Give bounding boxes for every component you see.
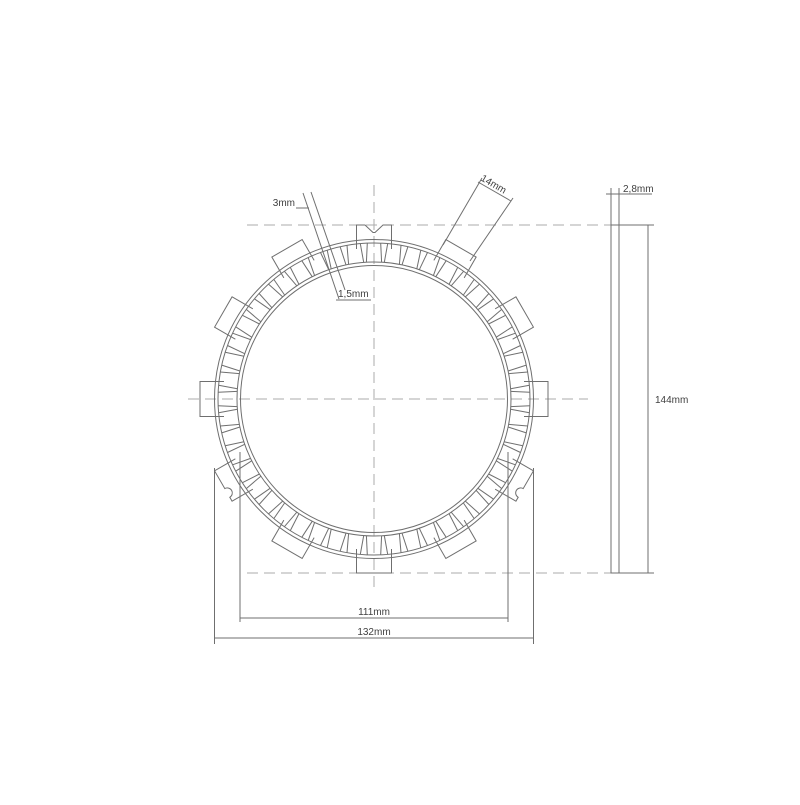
pad-groove-line xyxy=(508,365,526,371)
pad-groove-line xyxy=(347,245,349,264)
pad-groove-line xyxy=(402,247,408,265)
pad-groove-line xyxy=(290,267,299,284)
pad-groove-line xyxy=(511,391,530,392)
pad-groove-line xyxy=(366,536,367,555)
pad-groove-line xyxy=(228,346,245,354)
pad-groove-line xyxy=(487,476,502,488)
pad-groove-line xyxy=(366,243,367,262)
pad-groove-line xyxy=(254,488,270,499)
pad-groove-line xyxy=(381,243,382,262)
dimension-lines xyxy=(215,178,655,644)
pad-groove-line xyxy=(503,346,520,354)
pad-groove-line xyxy=(511,385,530,388)
pad-groove-line xyxy=(419,528,427,545)
side-view xyxy=(611,225,619,573)
pad-groove-line xyxy=(290,514,299,531)
pad-groove-line xyxy=(417,529,421,548)
pad-groove-line xyxy=(254,299,270,310)
pad-groove-line xyxy=(487,309,502,321)
thickness-label: 2,8mm xyxy=(623,184,654,195)
pad-groove-line xyxy=(504,442,523,446)
slot-inner-width-label: 1,5mm xyxy=(338,289,369,300)
pad-groove-line xyxy=(508,427,526,433)
pad-groove-line xyxy=(509,424,528,426)
pad-groove-line xyxy=(219,385,238,388)
pad-groove-line xyxy=(327,529,331,548)
pad-groove-line xyxy=(399,534,401,553)
dimension-labels: 3mm 14mm 1,5mm 2,8mm 144mm 111mm 132mm xyxy=(273,173,689,638)
pad-groove-line xyxy=(225,352,244,356)
pad-groove-line xyxy=(274,279,285,295)
dimension-line xyxy=(443,178,482,245)
pad-groove-line xyxy=(274,503,285,519)
pad-groove-line xyxy=(478,299,494,310)
pad-groove-line xyxy=(511,409,530,412)
pad-groove-line xyxy=(269,501,283,514)
pad-groove-line xyxy=(463,503,474,519)
pad-groove-line xyxy=(284,271,296,286)
pad-groove-line xyxy=(489,474,506,483)
pad-groove-line xyxy=(419,253,427,270)
slot-outer-width-label: 3mm xyxy=(273,198,295,209)
pad-groove-line xyxy=(451,512,463,527)
pad-groove-line xyxy=(511,406,530,407)
pad-groove-line xyxy=(449,267,458,284)
pad-groove-line xyxy=(220,372,239,374)
pad-groove-line xyxy=(340,533,346,551)
pad-groove-line xyxy=(242,474,259,483)
pad-groove-line xyxy=(347,534,349,553)
pad-groove-line xyxy=(478,488,494,499)
pad-groove-line xyxy=(381,536,382,555)
pad-groove-line xyxy=(465,501,479,514)
pad-groove-line xyxy=(246,476,260,488)
outer-diameter-label: 132mm xyxy=(357,627,390,638)
pad-groove-line xyxy=(218,391,237,392)
pad-groove-line xyxy=(220,424,239,426)
pad-groove-line xyxy=(451,271,463,286)
pad-groove-line xyxy=(503,444,520,452)
pad-groove-line xyxy=(284,512,296,527)
pad-groove-line xyxy=(476,490,489,504)
pad-groove-line xyxy=(465,284,479,297)
pad-groove-line xyxy=(504,352,523,356)
pad-groove-line xyxy=(222,365,240,371)
pad-groove-line xyxy=(402,533,408,551)
pad-groove-line xyxy=(269,284,283,297)
pad-groove-line xyxy=(384,536,387,555)
clutch-friction-plate-drawing: 3mm 14mm 1,5mm 2,8mm 144mm 111mm 132mm xyxy=(0,0,800,800)
pad-groove-line xyxy=(463,279,474,295)
pad-groove-line xyxy=(242,315,259,324)
pad-groove-line xyxy=(476,294,489,308)
pad-groove-line xyxy=(259,490,272,504)
overall-diameter-label: 144mm xyxy=(655,395,688,406)
pad-groove-line xyxy=(321,528,329,545)
pad-groove-line xyxy=(259,294,272,308)
pad-groove-line xyxy=(218,406,237,407)
inner-diameter-label: 111mm xyxy=(358,607,390,618)
pad-groove-line xyxy=(489,315,506,324)
tab-width-label: 14mm xyxy=(478,173,508,196)
pad-groove-line xyxy=(225,442,244,446)
dimension-line xyxy=(470,198,513,261)
pad-groove-line xyxy=(340,247,346,265)
pad-groove-line xyxy=(219,409,238,412)
pad-groove-line xyxy=(384,244,387,263)
pad-groove-line xyxy=(360,536,363,555)
pad-groove-line xyxy=(399,245,401,264)
pad-groove-line xyxy=(222,427,240,433)
pad-groove-line xyxy=(417,250,421,269)
pad-groove-line xyxy=(246,309,260,321)
pad-groove-line xyxy=(449,514,458,531)
pad-groove-line xyxy=(509,372,528,374)
pad-groove-line xyxy=(360,244,363,263)
plate-edge-profile xyxy=(611,225,619,573)
pad-groove-line xyxy=(228,444,245,452)
